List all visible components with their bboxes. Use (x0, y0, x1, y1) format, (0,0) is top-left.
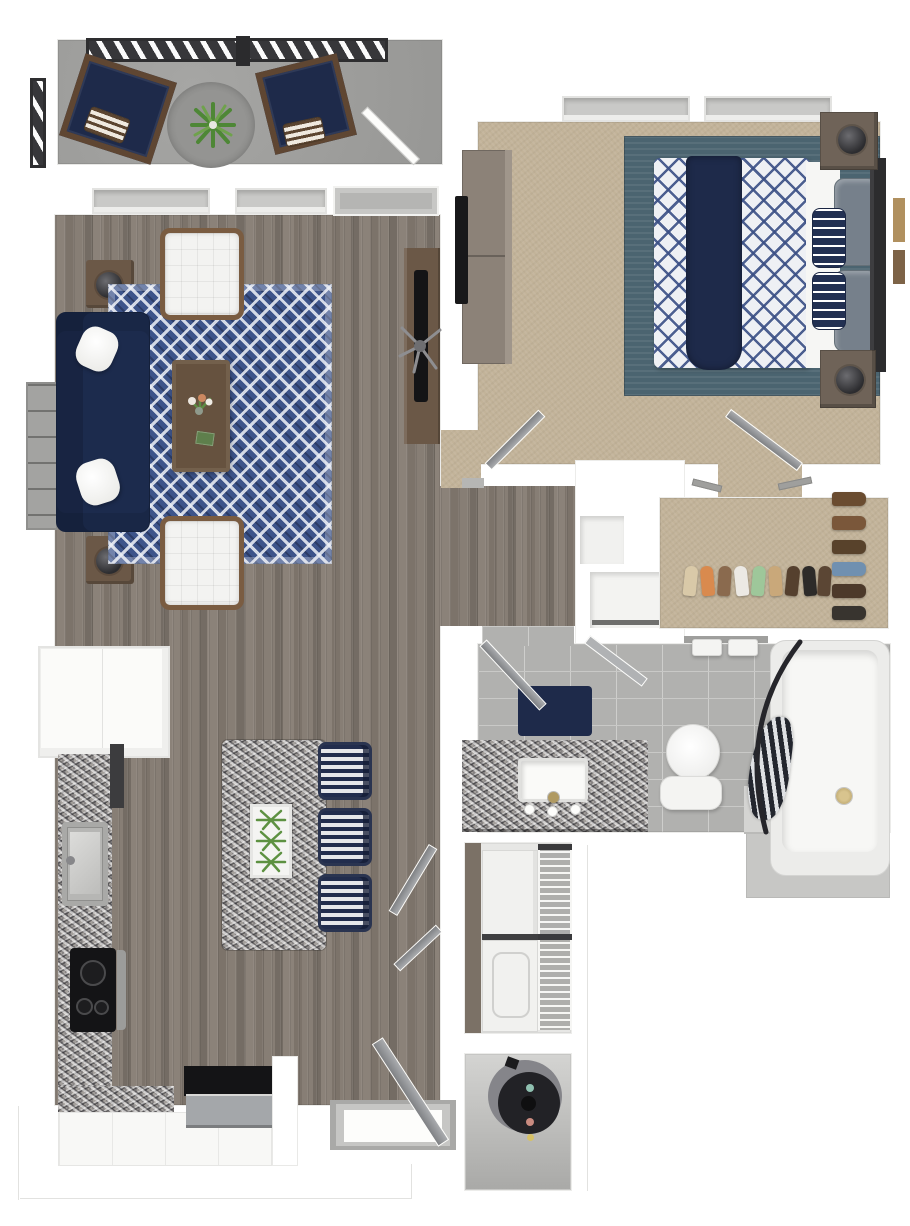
table-lamp (838, 126, 866, 154)
vanity-knob (524, 804, 535, 815)
window (235, 188, 327, 214)
shoe-pair (717, 566, 732, 597)
shoe-pair (817, 566, 832, 597)
plants-icon (252, 806, 290, 876)
exterior-wall-line (587, 845, 588, 1191)
upper-cabinets (38, 646, 170, 758)
oven-door (117, 950, 126, 1030)
table-lamp (836, 366, 864, 394)
bar-stool (318, 874, 372, 932)
heater-fitting (526, 1084, 534, 1092)
vanity-knob (570, 804, 581, 815)
dryer-door (492, 952, 530, 1018)
bar-stool (318, 808, 372, 866)
shoe-pair (751, 565, 767, 596)
exterior-wall-line (20, 1198, 412, 1199)
toilet-tank (660, 776, 722, 810)
shoe-pair (832, 540, 866, 554)
bed-runner (686, 156, 742, 370)
balcony-door-threshold (333, 186, 439, 216)
window (92, 188, 210, 214)
flowers-icon (182, 390, 218, 426)
railing-post (236, 36, 250, 66)
plant-icon (185, 97, 241, 153)
shelf-edge (538, 934, 572, 940)
window (562, 96, 690, 122)
dresser (462, 150, 512, 364)
balcony-railing-left (30, 78, 46, 168)
burner-icon (94, 1000, 109, 1015)
shoe-pair (700, 565, 716, 596)
curtain-rod-icon (740, 636, 810, 836)
bathroom-doorway (482, 626, 574, 646)
tub-faucet-icon (836, 788, 852, 804)
laundry-wall (465, 843, 481, 1033)
sink-basin (70, 832, 100, 894)
burner-icon (80, 960, 106, 986)
wall-art (893, 250, 905, 284)
wall-niche (580, 516, 624, 564)
faucet-icon (548, 792, 559, 803)
shoe-pair (802, 565, 818, 596)
floor-plan (0, 0, 910, 1226)
tv (455, 196, 468, 304)
bookshelf (26, 382, 58, 530)
armchair (160, 228, 244, 320)
refrigerator (184, 1066, 274, 1096)
granite-counter (58, 754, 112, 1088)
shelf-edge (538, 844, 572, 850)
shoe-pair (768, 566, 783, 597)
shoe-pair (832, 584, 866, 598)
book (195, 431, 215, 446)
armchair (160, 516, 244, 610)
hallway-floor (440, 486, 576, 626)
washer (482, 850, 538, 938)
wall (272, 1056, 298, 1166)
vanity-knob (547, 806, 558, 817)
heater-fitting (526, 1118, 534, 1126)
heater-fitting (527, 1134, 534, 1141)
shoe-pair (832, 516, 866, 530)
toilet (666, 724, 720, 780)
shoe-pair (832, 492, 866, 506)
dishwasher (110, 744, 124, 808)
faucet-icon (66, 856, 75, 865)
headboard (870, 158, 886, 372)
towel (692, 639, 722, 656)
wall-art (893, 198, 905, 242)
office-chair-icon (396, 316, 444, 378)
accent-pillow (812, 208, 846, 268)
door-threshold (462, 478, 484, 488)
accent-pillow (812, 272, 846, 330)
refrigerator-front (186, 1094, 272, 1128)
exterior-wall-line (18, 1106, 19, 1200)
window (704, 96, 832, 122)
shoe-pair (832, 562, 866, 576)
bar-stool (318, 742, 372, 800)
heater-valve (521, 1096, 536, 1111)
burner-icon (76, 998, 93, 1015)
shoe-pair (832, 606, 866, 620)
exterior-wall-line (411, 1164, 412, 1199)
